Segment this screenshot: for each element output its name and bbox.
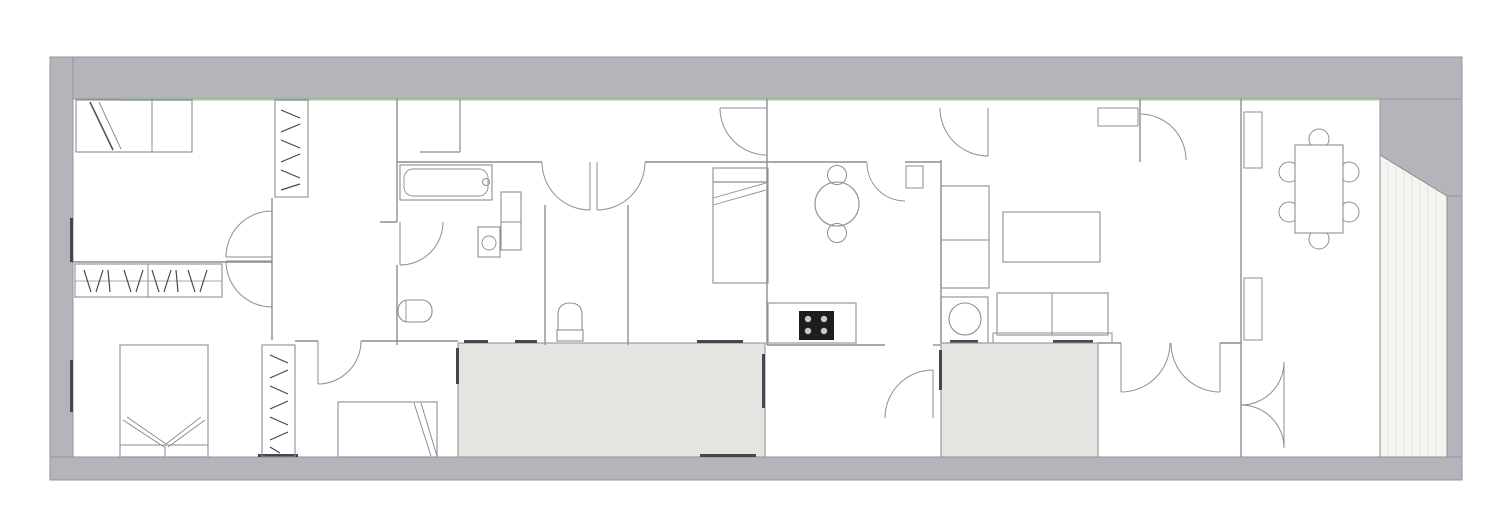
bed-blanket-fold xyxy=(123,417,205,457)
threshold-mark xyxy=(939,350,942,390)
hanger-ticks xyxy=(281,110,300,190)
washbasin-bowl xyxy=(482,236,496,250)
threshold-mark xyxy=(697,340,743,343)
door-arc-bedroom3 xyxy=(318,341,361,384)
bed-blanket-fold xyxy=(713,183,766,205)
threshold-mark xyxy=(762,354,765,408)
floor-plan-drawing xyxy=(0,0,1500,517)
door-arc-east-lower xyxy=(1241,405,1284,448)
threshold-mark xyxy=(700,454,756,457)
door-arc-bathroom xyxy=(400,222,443,265)
washbasin xyxy=(478,227,500,257)
bed-single-middle xyxy=(713,168,768,283)
garden-strip xyxy=(120,97,1380,101)
radiator xyxy=(1244,112,1262,168)
bed-blanket-fold xyxy=(414,403,437,456)
terrace-deck xyxy=(1380,155,1447,457)
door-arc-french-left xyxy=(1121,343,1170,392)
wall-right xyxy=(1447,190,1462,457)
door-arc-wc-right xyxy=(597,162,645,210)
kitchen-round-table xyxy=(815,182,859,226)
bathtub-inner xyxy=(404,169,488,196)
sink-round xyxy=(949,303,981,335)
window-mark xyxy=(70,218,73,262)
screenshot-root xyxy=(0,0,1500,517)
toilet-tank xyxy=(557,330,583,341)
bidet xyxy=(398,300,432,322)
cooktop-burner xyxy=(805,316,811,322)
wall-bottom xyxy=(50,457,1462,480)
bathtub xyxy=(400,165,492,200)
threshold-mark xyxy=(456,348,459,384)
door-arc-vestibule xyxy=(1140,114,1186,160)
door-arc-french-right xyxy=(1171,343,1220,392)
door-arc-east-upper xyxy=(1241,362,1284,405)
toilet-bowl xyxy=(558,303,582,330)
cooktop xyxy=(799,311,834,340)
door-arc-living-entry xyxy=(940,108,988,156)
kitchen-cabinet-small xyxy=(906,166,923,188)
wall-left xyxy=(50,57,73,480)
cooktop-burner xyxy=(821,328,827,334)
patio-court-left xyxy=(458,343,765,457)
patio-court-right xyxy=(941,343,1098,457)
bath-cabinet xyxy=(501,192,521,250)
cooktop-burner xyxy=(805,328,811,334)
radiator xyxy=(1244,278,1262,340)
console-table xyxy=(1098,108,1138,126)
door-arc-kitchen-south xyxy=(885,370,933,418)
bed-pillow-fold xyxy=(90,102,113,150)
hanger-ticks xyxy=(270,355,288,453)
dining-table xyxy=(1295,145,1343,233)
bed-double-bottom-left xyxy=(120,345,208,457)
window-mark xyxy=(70,360,73,412)
wall-top xyxy=(58,57,1462,99)
cooktop-burner xyxy=(821,316,827,322)
door-arc-midbedroom xyxy=(720,108,767,155)
door-arc-dressing-upper xyxy=(226,211,272,257)
bathtub-faucet xyxy=(483,179,490,186)
tall-shelf-cabinet xyxy=(941,186,989,288)
threshold-mark xyxy=(464,340,488,343)
wardrobe-hangers-vertical xyxy=(262,345,295,457)
coffee-table xyxy=(1003,212,1100,262)
door-arc-wc-left xyxy=(542,162,590,210)
door-arc-dressing-lower xyxy=(226,261,272,307)
threshold-mark xyxy=(515,340,537,343)
door-arc-kitchen xyxy=(867,163,905,201)
